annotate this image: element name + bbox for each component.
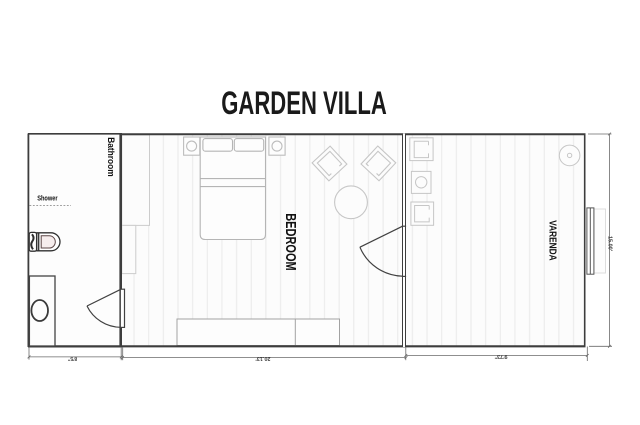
- svg-text:BEDROOM: BEDROOM: [282, 213, 299, 271]
- svg-text:GARDEN VILLA: GARDEN VILLA: [221, 85, 387, 121]
- svg-text:8'5": 8'5": [67, 355, 77, 361]
- svg-text:15.00': 15.00': [606, 236, 612, 252]
- svg-text:20.13': 20.13': [255, 355, 271, 361]
- svg-text:Bathroom: Bathroom: [106, 137, 116, 177]
- svg-text:VARENDA: VARENDA: [546, 220, 557, 261]
- svg-text:Shower: Shower: [37, 196, 58, 203]
- svg-text:9'73": 9'73": [494, 353, 507, 359]
